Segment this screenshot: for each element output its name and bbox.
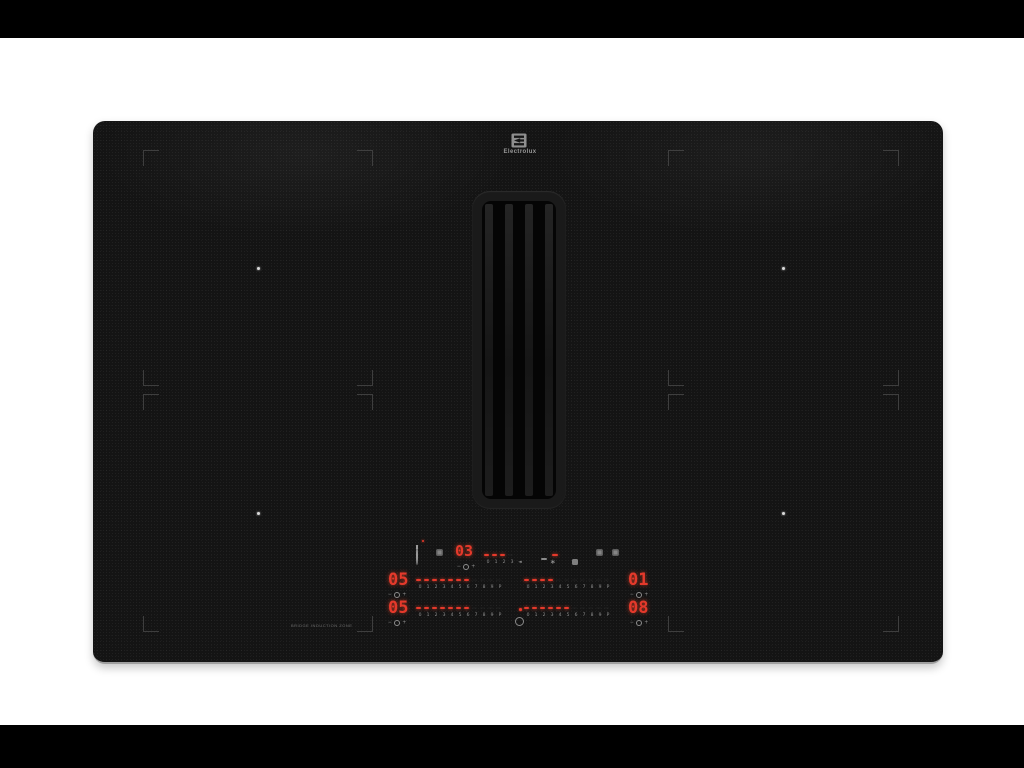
scale-tick: 2	[500, 560, 508, 565]
zone-bracket-corner	[357, 150, 373, 166]
slider-segment	[596, 579, 601, 581]
zone-center-dot	[257, 267, 260, 270]
scale-tick: 3	[508, 560, 516, 565]
scale-tick: P	[496, 613, 504, 618]
slider-segment	[472, 579, 477, 581]
slider-segment	[524, 607, 529, 609]
scale-tick: 8	[480, 613, 488, 618]
hood-indicator-dot	[422, 540, 424, 542]
menu-icon	[612, 549, 619, 556]
zone-display-right-b: 08	[628, 599, 648, 618]
slider-segment	[564, 607, 569, 609]
scale-tick: 8	[588, 585, 596, 590]
scale-tick: 6	[572, 585, 580, 590]
scale-tick: 4	[448, 613, 456, 618]
cooking-zone-bottom-left	[143, 394, 373, 632]
slider-segment	[440, 579, 445, 581]
zone-center-dot	[782, 512, 785, 515]
zone-slider-right-b	[524, 607, 612, 609]
slider-segment	[564, 579, 569, 581]
slider-segment	[488, 607, 493, 609]
slider-segment	[456, 579, 461, 581]
slider-segment	[588, 607, 593, 609]
bridge-indicator-dot	[519, 608, 522, 611]
hood-fan-slider	[484, 554, 516, 556]
slider-segment	[532, 579, 537, 581]
zone-bracket-corner	[143, 394, 159, 410]
zone-bracket-corner	[143, 150, 159, 166]
scale-tick: 0	[524, 585, 532, 590]
slider-segment	[432, 607, 437, 609]
scale-tick: 2	[540, 613, 548, 618]
scale-tick: 3	[548, 613, 556, 618]
zone-center-dot	[782, 267, 785, 270]
slider-segment	[464, 607, 469, 609]
scale-tick: 7	[472, 585, 480, 590]
zone-bracket-corner	[143, 370, 159, 386]
plus-icon: +	[403, 620, 407, 626]
scale-tick: 9	[488, 613, 496, 618]
slider-segment	[548, 579, 553, 581]
zone-scale-left-a: 0123456789P	[416, 585, 504, 590]
hood-fan-scale: 0123◄	[484, 560, 524, 565]
zone-scale-right-b: 0123456789P	[524, 613, 612, 618]
scale-tick: 1	[492, 560, 500, 565]
zone-slider-right-a	[524, 579, 612, 581]
scale-tick: 2	[432, 585, 440, 590]
hood-timer-controls: − +	[457, 564, 475, 570]
slider-segment	[508, 554, 513, 556]
slider-segment	[472, 607, 477, 609]
zone-display-left-a: 05	[388, 571, 408, 590]
slider-segment	[580, 607, 585, 609]
slider-segment	[480, 607, 485, 609]
slider-segment	[448, 607, 453, 609]
power-mini-icon	[394, 620, 400, 626]
scale-tick: 5	[564, 585, 572, 590]
slider-segment	[556, 607, 561, 609]
slider-segment	[572, 579, 577, 581]
zone-bracket-corner	[668, 394, 684, 410]
vent-slat	[505, 204, 513, 496]
slider-segment	[416, 579, 421, 581]
slider-segment	[596, 607, 601, 609]
electrolux-logo-icon	[511, 133, 527, 148]
slider-segment	[456, 607, 461, 609]
slider-segment	[492, 554, 497, 556]
scale-tick: 6	[572, 613, 580, 618]
scale-tick: 1	[424, 585, 432, 590]
scale-tick: 1	[532, 613, 540, 618]
scale-tick: P	[496, 585, 504, 590]
scale-tick: 6	[464, 613, 472, 618]
scale-tick: 1	[532, 585, 540, 590]
hood-display: 03	[455, 543, 473, 560]
letterbox-top	[0, 0, 1024, 38]
hood-minus-dash-icon	[541, 558, 547, 560]
slider-segment	[588, 579, 593, 581]
slider-segment	[448, 579, 453, 581]
slider-segment	[500, 554, 505, 556]
scale-tick: 2	[540, 585, 548, 590]
slider-segment	[540, 579, 545, 581]
cooking-zone-bottom-right	[668, 394, 899, 632]
slider-segment	[604, 579, 609, 581]
power-mini-icon	[463, 564, 469, 570]
zone-display-left-b: 05	[388, 599, 408, 618]
zone-scale-left-b: 0123456789P	[416, 613, 504, 618]
vent-slat	[485, 204, 493, 496]
scale-tick: ◄	[516, 560, 524, 565]
scale-tick: 8	[588, 613, 596, 618]
zone-bracket-corner	[357, 370, 373, 386]
slider-segment	[424, 579, 429, 581]
slider-segment	[604, 607, 609, 609]
scale-tick: 4	[448, 585, 456, 590]
scale-tick: 5	[456, 613, 464, 618]
zone-bracket-corner	[883, 150, 899, 166]
zone-slider-left-b	[416, 607, 504, 609]
fan-auto-icon: ∗	[550, 559, 556, 566]
minus-icon: −	[457, 564, 461, 570]
zone-bracket-corner	[357, 394, 373, 410]
vent-slat	[545, 204, 553, 496]
scale-tick: 5	[564, 613, 572, 618]
minus-icon: −	[630, 620, 634, 626]
slider-segment	[532, 607, 537, 609]
zone-scale-right-a: 0123456789P	[524, 585, 612, 590]
slider-segment	[524, 579, 529, 581]
scale-tick: 9	[596, 613, 604, 618]
slider-segment	[416, 607, 421, 609]
power-mini-icon	[636, 620, 642, 626]
zone-mini-controls: − +	[630, 620, 648, 626]
zone-bracket-corner	[668, 150, 684, 166]
lock-icon	[596, 549, 603, 556]
plus-icon: +	[645, 620, 649, 626]
vent-slat	[525, 204, 533, 496]
scale-tick: 2	[432, 613, 440, 618]
scale-tick: 0	[416, 613, 424, 618]
zone-bracket-corner	[883, 370, 899, 386]
scale-tick: 9	[596, 585, 604, 590]
scale-tick: 9	[488, 585, 496, 590]
filter-icon	[572, 559, 578, 565]
slider-segment	[488, 579, 493, 581]
zone-slider-left-a	[416, 579, 504, 581]
slider-segment	[480, 579, 485, 581]
scale-tick: P	[604, 613, 612, 618]
induction-cooktop: Electrolux 03 − + 0123◄ ∗ 05 − + 0123456…	[93, 121, 943, 664]
slider-segment	[496, 579, 501, 581]
vent-grille	[482, 201, 556, 499]
scale-tick: 5	[456, 585, 464, 590]
slider-segment	[556, 579, 561, 581]
zone-mini-controls: − +	[388, 620, 406, 626]
hood-boost-segment	[552, 554, 558, 556]
scale-tick: 0	[484, 560, 492, 565]
slider-segment	[548, 607, 553, 609]
slider-segment	[580, 579, 585, 581]
extractor-vent	[472, 191, 566, 509]
scale-tick: 0	[524, 613, 532, 618]
zone-bracket-corner	[668, 616, 684, 632]
slider-segment	[440, 607, 445, 609]
scale-tick: 3	[548, 585, 556, 590]
zone-bracket-corner	[143, 616, 159, 632]
scale-tick: 7	[580, 613, 588, 618]
scale-tick: 4	[556, 585, 564, 590]
scale-tick: 3	[440, 585, 448, 590]
slider-segment	[496, 607, 501, 609]
cooking-zone-top-left	[143, 150, 373, 386]
zone-bracket-corner	[668, 370, 684, 386]
cooking-zone-top-right	[668, 150, 899, 386]
scale-tick: 8	[480, 585, 488, 590]
plus-icon: +	[472, 564, 476, 570]
minus-icon: −	[388, 620, 392, 626]
slider-segment	[540, 607, 545, 609]
scale-tick: 7	[580, 585, 588, 590]
scale-tick: P	[604, 585, 612, 590]
power-icon	[416, 546, 418, 565]
scale-tick: 1	[424, 613, 432, 618]
zone-bracket-corner	[883, 394, 899, 410]
zone-bracket-corner	[883, 616, 899, 632]
scale-tick: 6	[464, 585, 472, 590]
zone-bracket-corner	[357, 616, 373, 632]
slider-segment	[484, 554, 489, 556]
slider-segment	[572, 607, 577, 609]
letterbox-bottom	[0, 725, 1024, 768]
electrolux-wordmark: Electrolux	[499, 149, 541, 155]
scale-tick: 3	[440, 613, 448, 618]
bridge-icon	[515, 617, 524, 626]
zone-center-dot	[257, 512, 260, 515]
slider-segment	[424, 607, 429, 609]
scale-tick: 7	[472, 613, 480, 618]
small-print: Bridge induction zone	[291, 623, 352, 628]
scale-tick: 0	[416, 585, 424, 590]
slider-segment	[464, 579, 469, 581]
pause-icon	[436, 549, 443, 556]
zone-display-right-a: 01	[628, 571, 648, 590]
slider-segment	[432, 579, 437, 581]
scale-tick: 4	[556, 613, 564, 618]
